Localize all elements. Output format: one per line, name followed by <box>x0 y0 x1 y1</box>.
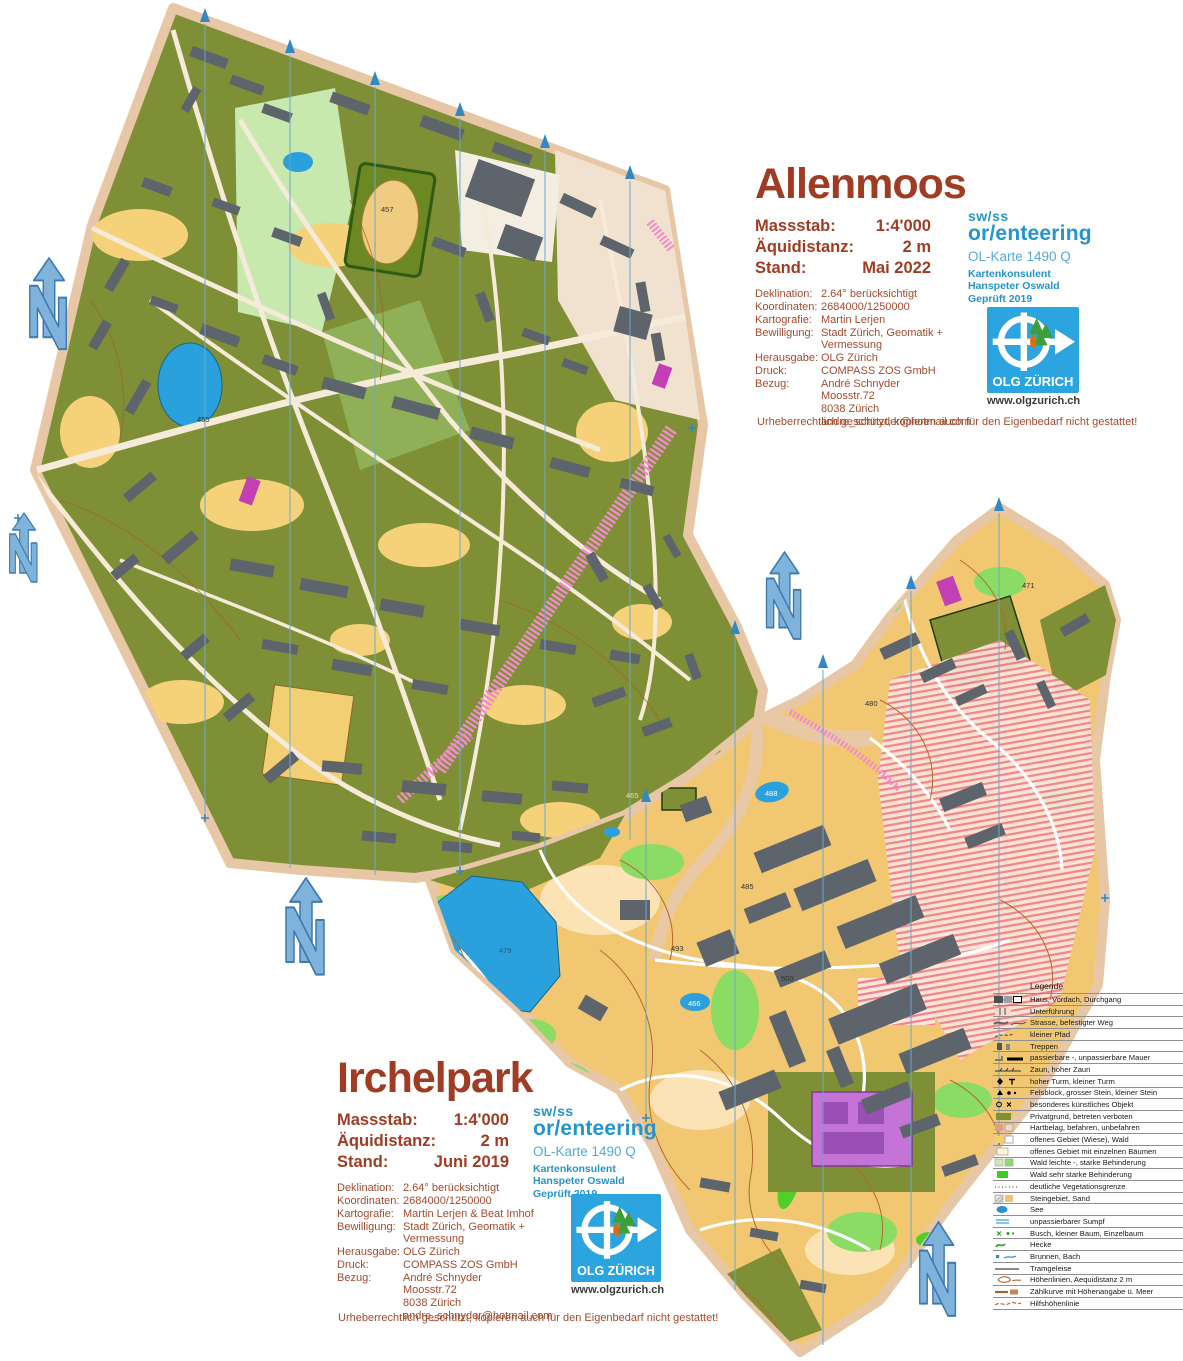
legend-row: passierbare -, unpassierbare Mauer <box>993 1051 1183 1063</box>
arrow-icon <box>638 1217 658 1242</box>
irchelpark-info: Massstab:1:4'000 Äquidistanz:2 m Stand:J… <box>337 1110 509 1172</box>
pfad-symbol-icon <box>993 1029 1027 1040</box>
olg-zuerich-logo: OLG ZÜRICH www.olgzurich.ch <box>987 307 1079 407</box>
legend-row: hoher Turm, kleiner Turm <box>993 1075 1183 1087</box>
tram-symbol-icon <box>993 1263 1027 1274</box>
legend-row: kleiner Pfad <box>993 1028 1183 1040</box>
stand-label: Stand: <box>755 258 806 279</box>
svg-text:471: 471 <box>1022 581 1035 590</box>
ol-karte-number: OL-Karte 1490 Q <box>968 250 1092 264</box>
vegetationsgrenze-symbol-icon <box>993 1181 1027 1192</box>
legend-row: Treppen <box>993 1040 1183 1052</box>
haus-symbol-icon <box>993 994 1027 1005</box>
legend-row: Strasse, befestigter Weg <box>993 1016 1183 1028</box>
zaun-symbol-icon <box>993 1064 1027 1075</box>
aequidistanz-label: Äquidistanz: <box>755 237 854 258</box>
detail-label: Bewilligung: <box>755 327 821 353</box>
detail-label: Koordinaten: <box>337 1195 403 1208</box>
aequidistanz-value: 2 m <box>854 237 931 258</box>
steingebiet-symbol-icon <box>993 1193 1027 1204</box>
detail-value: COMPASS ZOS GmbH <box>821 365 936 378</box>
olg-logo-icon: OLG ZÜRICH <box>987 307 1079 393</box>
svg-text:479: 479 <box>499 946 512 955</box>
svg-text:500: 500 <box>781 974 794 983</box>
detail-value: Martin Lerjen <box>821 314 885 327</box>
see-symbol-icon <box>993 1204 1027 1215</box>
consultant-role: Kartenkonsulent <box>533 1164 657 1175</box>
wald-behinderung-symbol-icon <box>993 1157 1027 1168</box>
detail-value: Martin Lerjen & Beat Imhof <box>403 1208 534 1221</box>
consultant-name: Hanspeter Oswald <box>533 1176 657 1187</box>
legend-row: Privatgrund, betreten verboten <box>993 1110 1183 1122</box>
olg-url: www.olgzurich.ch <box>987 395 1079 407</box>
legend-row: Hecke <box>993 1238 1183 1250</box>
hartbelag-symbol-icon <box>993 1122 1027 1133</box>
busch-symbol-icon <box>993 1228 1027 1239</box>
legend-row: besonderes künstliches Objekt <box>993 1098 1183 1110</box>
legend-row: Hartbelag, befahren, unbefahren <box>993 1122 1183 1134</box>
north-arrow-icon <box>767 552 801 639</box>
stand-value: Juni 2019 <box>388 1152 509 1173</box>
einzelbaeume-symbol-icon <box>993 1146 1027 1157</box>
detail-label: Herausgabe: <box>755 352 821 365</box>
legend-row: Zaun, hoher Zaun <box>993 1063 1183 1075</box>
svg-text:485: 485 <box>741 882 754 891</box>
allenmoos-copyright: Urheberrechtlich geschützt, kopieren auc… <box>757 416 1137 428</box>
detail-value: COMPASS ZOS GmbH <box>403 1259 518 1272</box>
legend-row: Höhenlinien, Aequidistanz 2 m <box>993 1274 1183 1286</box>
legend-row: Unterführung <box>993 1005 1183 1017</box>
turm-symbol-icon <box>993 1076 1027 1087</box>
wiese-wald-symbol-icon <box>993 1134 1027 1145</box>
legend-row: Zählkurve mit Höhenangabe ü. Meer <box>993 1285 1183 1297</box>
legend: Legende Haus, Vordach, Durchgang Unterfü… <box>993 981 1183 1310</box>
swiss-orienteering-wordmark: or/enteering <box>533 1118 657 1139</box>
fels-symbol-icon <box>993 1087 1027 1098</box>
stadium-457 <box>344 163 435 278</box>
detail-label: Herausgabe: <box>337 1246 403 1259</box>
detail-label: Deklination: <box>337 1182 403 1195</box>
detail-label: Bewilligung: <box>337 1221 403 1247</box>
detail-label: Kartografie: <box>337 1208 403 1221</box>
swiss-orienteering-wordmark: sw/ss <box>968 209 1092 223</box>
mauer-symbol-icon <box>993 1052 1027 1063</box>
svg-text:455: 455 <box>197 415 210 424</box>
allenmoos-details: Deklination:2.64° berücksichtigt Koordin… <box>755 288 970 428</box>
aequidistanz-label: Äquidistanz: <box>337 1131 436 1152</box>
detail-value: 2.64° berücksichtigt <box>403 1182 499 1195</box>
legend-row: deutliche Vegetationsgrenze <box>993 1180 1183 1192</box>
legend-title: Legende <box>993 981 1183 993</box>
svg-text:480: 480 <box>865 699 878 708</box>
detail-label: Koordinaten: <box>755 301 821 314</box>
map-sheet: 455 457 465 466 471 480 485 488 493 500 … <box>0 0 1183 1361</box>
allenmoos-map-graphic <box>35 8 763 878</box>
north-arrow-icon <box>286 878 324 975</box>
legend-row: offenes Gebiet (Wiese), Wald <box>993 1133 1183 1145</box>
svg-text:493: 493 <box>671 944 684 953</box>
legend-row: Felsblock, grosser Stein, kleiner Stein <box>993 1087 1183 1099</box>
detail-value: 2684000/1250000 <box>403 1195 492 1208</box>
detail-value: OLG Zürich <box>821 352 878 365</box>
consultant-name: Hanspeter Oswald <box>968 281 1092 292</box>
wald-sehr-stark-symbol-icon <box>993 1169 1027 1180</box>
allenmoos-title-block: Allenmoos Massstab:1:4'000 Äquidistanz:2… <box>755 163 970 429</box>
hoehenlinien-symbol-icon <box>993 1274 1027 1285</box>
north-arrow-icon <box>30 258 66 349</box>
ol-karte-number: OL-Karte 1490 Q <box>533 1145 657 1159</box>
page-title-irchelpark: Irchelpark <box>337 1057 552 1100</box>
massstab-label: Massstab: <box>337 1110 418 1131</box>
detail-label: Druck: <box>755 365 821 378</box>
treppen-symbol-icon <box>993 1041 1027 1052</box>
olg-name: OLG ZÜRICH <box>571 1264 661 1278</box>
massstab-label: Massstab: <box>755 216 836 237</box>
olg-name: OLG ZÜRICH <box>987 374 1079 389</box>
legend-row: Wald sehr starke Behinderung <box>993 1168 1183 1180</box>
sumpf-symbol-icon <box>993 1216 1027 1227</box>
privatgrund-symbol-icon <box>993 1111 1027 1122</box>
swiss-orienteering-logo: sw/ss or/enteering OL-Karte 1490 Q Karte… <box>968 209 1092 304</box>
olg-zuerich-logo: OLG ZÜRICH www.olgzurich.ch <box>571 1194 661 1296</box>
legend-row: Tramgeleise <box>993 1262 1183 1274</box>
stand-value: Mai 2022 <box>806 258 931 279</box>
olg-url: www.olgzurich.ch <box>571 1284 661 1296</box>
strasse-symbol-icon <box>993 1017 1027 1028</box>
detail-value: 2.64° berücksichtigt <box>821 288 917 301</box>
aequidistanz-value: 2 m <box>436 1131 509 1152</box>
irchelpark-details: Deklination:2.64° berücksichtigt Koordin… <box>337 1182 552 1322</box>
detail-value: Stadt Zürich, Geomatik + Vermessung <box>821 327 943 353</box>
legend-row: Busch, kleiner Baum, Einzelbaum <box>993 1227 1183 1239</box>
legend-row: unpassierbarer Sumpf <box>993 1215 1183 1227</box>
hecke-symbol-icon <box>993 1239 1027 1250</box>
detail-label: Druck: <box>337 1259 403 1272</box>
checked-year: Geprüft 2019 <box>968 294 1092 305</box>
page-title-allenmoos: Allenmoos <box>755 163 970 206</box>
detail-label: Deklination: <box>755 288 821 301</box>
consultant-role: Kartenkonsulent <box>968 269 1092 280</box>
svg-text:457: 457 <box>381 205 394 214</box>
swiss-orienteering-logo: sw/ss or/enteering OL-Karte 1490 Q Karte… <box>533 1104 657 1199</box>
legend-row: See <box>993 1203 1183 1215</box>
stand-label: Stand: <box>337 1152 388 1173</box>
svg-text:488: 488 <box>765 789 778 798</box>
legend-row: Hilfshöhenlinie <box>993 1297 1183 1310</box>
svg-text:466: 466 <box>688 999 701 1008</box>
brunnen-symbol-icon <box>993 1251 1027 1262</box>
massstab-value: 1:4'000 <box>418 1110 509 1131</box>
allenmoos-info: Massstab:1:4'000 Äquidistanz:2 m Stand:M… <box>755 216 970 278</box>
swiss-orienteering-wordmark: or/enteering <box>968 223 1092 244</box>
zaehlkurve-symbol-icon <box>993 1286 1027 1297</box>
svg-text:465: 465 <box>626 791 639 800</box>
detail-value: Stadt Zürich, Geomatik + Vermessung <box>403 1221 525 1247</box>
irchelpark-copyright: Urheberrechtlich geschützt, kopieren auc… <box>338 1312 718 1324</box>
swiss-orienteering-wordmark: sw/ss <box>533 1104 657 1118</box>
arrow-icon <box>1055 329 1075 355</box>
legend-row: Haus, Vordach, Durchgang <box>993 993 1183 1005</box>
hilfshoehenlinie-symbol-icon <box>993 1298 1027 1309</box>
detail-label: Kartografie: <box>755 314 821 327</box>
legend-row: offenes Gebiet mit einzelnen Bäumen <box>993 1145 1183 1157</box>
irchelpark-title-block: Irchelpark Massstab:1:4'000 Äquidistanz:… <box>337 1057 552 1323</box>
olg-logo-icon: OLG ZÜRICH <box>571 1194 661 1282</box>
massstab-value: 1:4'000 <box>836 216 931 237</box>
detail-value: 2684000/1250000 <box>821 301 910 314</box>
legend-row: Brunnen, Bach <box>993 1250 1183 1262</box>
detail-value: OLG Zürich <box>403 1246 460 1259</box>
objekt-symbol-icon <box>993 1099 1027 1110</box>
unterfuehrung-symbol-icon <box>993 1006 1027 1017</box>
legend-row: Steingebiet, Sand <box>993 1192 1183 1204</box>
north-arrow-icon <box>10 513 37 582</box>
legend-row: Wald leichte -, starke Behinderung <box>993 1157 1183 1169</box>
